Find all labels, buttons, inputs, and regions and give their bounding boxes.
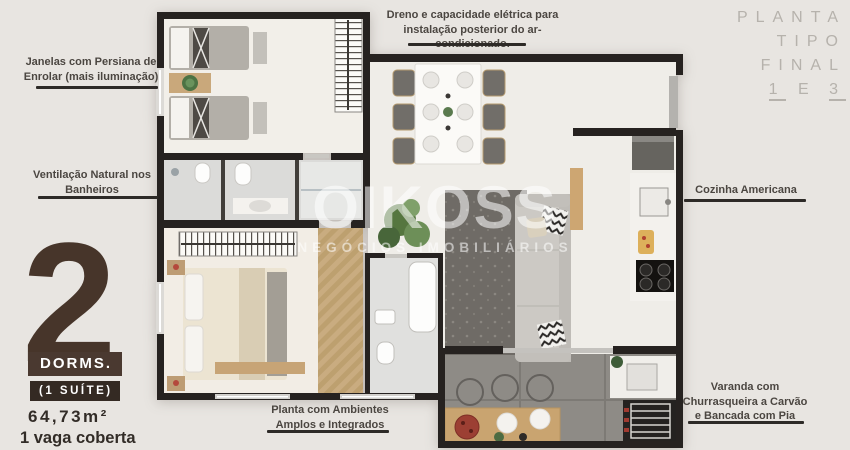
door <box>321 221 349 226</box>
shower-head <box>171 168 179 176</box>
plan-type-label: PLANTA TIPO FINAL 1 E 3 <box>688 6 838 102</box>
floor-plan-ad: OIKOSS NEGÓCIOS IMOBILIÁRIOS Dreno e cap… <box>0 0 850 450</box>
annotation-kitchen-underline <box>684 199 806 202</box>
annotation-ac-drain-underline <box>408 43 526 46</box>
plan-type-line2: TIPO <box>688 30 846 54</box>
toilet <box>235 163 251 185</box>
master-suite <box>167 232 305 391</box>
dining-set <box>393 64 505 164</box>
chevron-pillow <box>537 320 567 350</box>
annotation-open-plan-underline <box>267 430 389 433</box>
plan-type-line1: PLANTA <box>688 6 846 30</box>
unit-area: 64,73m² <box>28 407 109 427</box>
dorms-label: DORMS. <box>28 352 122 376</box>
plant <box>611 356 623 368</box>
bed-bench <box>215 362 305 374</box>
door <box>305 154 329 158</box>
rug <box>445 190 527 355</box>
entry-door <box>669 76 678 128</box>
plate <box>497 413 517 433</box>
plate <box>530 409 550 429</box>
hallway-wood-floor <box>318 228 363 393</box>
plan-type-units: 1 E 3 <box>688 78 846 102</box>
toilet <box>377 342 394 364</box>
plan-type-line3: FINAL <box>688 54 846 78</box>
suite-badge: (1 SUÍTE) <box>30 381 120 401</box>
annotation-balcony-underline <box>688 421 804 424</box>
balcony-sink-counter <box>610 356 676 398</box>
annotation-kitchen: Cozinha Americana <box>684 183 808 198</box>
door <box>385 254 407 258</box>
unit-number-1: 1 <box>769 81 786 101</box>
unit-parking: 1 vaga coberta <box>20 429 136 448</box>
sink <box>375 310 395 324</box>
unit-info: 2 DORMS. (1 SUÍTE) 64,73m² 1 vaga cobert… <box>0 0 160 450</box>
kitchen-sink <box>640 188 668 216</box>
toilet <box>195 163 210 183</box>
unit-separator: E <box>798 81 817 98</box>
floor-plan <box>155 10 690 450</box>
living-room <box>445 190 571 362</box>
pizza <box>455 415 479 439</box>
bathtub <box>409 262 436 332</box>
sliding-door <box>503 348 613 353</box>
chairs-right <box>483 70 505 164</box>
greens <box>494 432 504 442</box>
balcony-sink <box>627 364 657 390</box>
sofa <box>515 194 571 362</box>
unit-number-3: 3 <box>829 81 846 101</box>
annotation-balcony: Varanda com Churrasqueira a Carvão e Ban… <box>680 380 810 424</box>
bed-bench <box>253 32 267 64</box>
bed-bench <box>253 102 267 134</box>
bar-stools <box>457 375 553 405</box>
chairs-left <box>393 70 415 164</box>
barbecue-grill <box>623 400 676 442</box>
annotation-open-plan: Planta com Ambientes Amplos e Integrados <box>260 403 400 432</box>
cutting-board <box>638 230 654 254</box>
bar-counter <box>570 168 583 230</box>
cooktop <box>636 260 674 292</box>
